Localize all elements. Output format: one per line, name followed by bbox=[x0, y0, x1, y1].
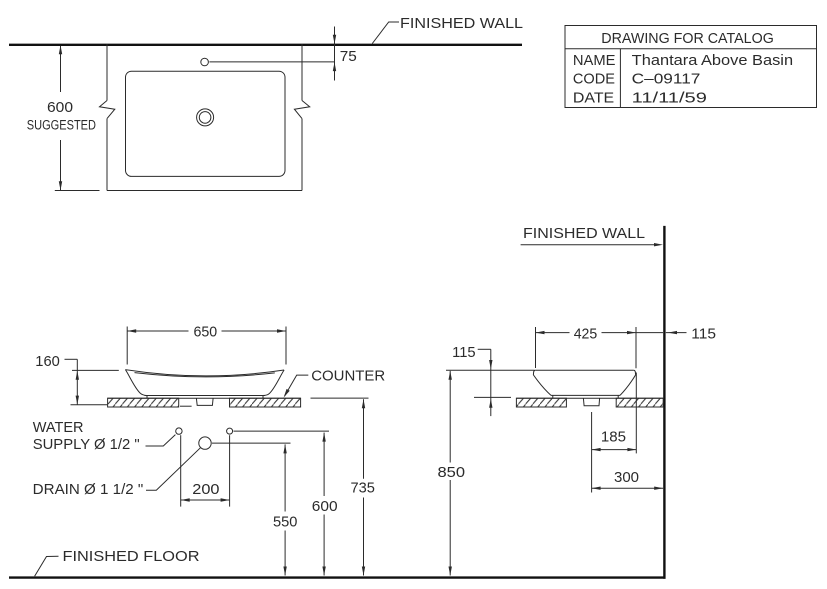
svg-text:DATE: DATE bbox=[573, 89, 614, 106]
svg-text:FINISHED WALL: FINISHED WALL bbox=[523, 225, 645, 242]
svg-text:160: 160 bbox=[35, 353, 60, 370]
svg-text:425: 425 bbox=[574, 326, 598, 343]
svg-text:300: 300 bbox=[614, 469, 639, 486]
svg-text:600: 600 bbox=[312, 498, 338, 515]
svg-text:Thantara Above Basin: Thantara Above Basin bbox=[632, 52, 793, 69]
svg-text:115: 115 bbox=[691, 326, 716, 343]
svg-text:75: 75 bbox=[340, 48, 357, 65]
svg-text:600: 600 bbox=[47, 99, 73, 116]
svg-text:SUGGESTED: SUGGESTED bbox=[27, 118, 96, 133]
svg-text:COUNTER: COUNTER bbox=[311, 367, 385, 384]
svg-text:C–09117: C–09117 bbox=[632, 70, 701, 87]
svg-text:850: 850 bbox=[438, 464, 466, 481]
svg-text:NAME: NAME bbox=[573, 52, 616, 69]
svg-text:550: 550 bbox=[273, 514, 297, 531]
svg-text:CODE: CODE bbox=[573, 70, 615, 87]
svg-text:185: 185 bbox=[601, 429, 626, 446]
svg-text:WATER: WATER bbox=[33, 419, 84, 436]
svg-text:DRAIN Ø 1 1/2 ": DRAIN Ø 1 1/2 " bbox=[33, 481, 144, 498]
svg-text:DRAWING FOR CATALOG: DRAWING FOR CATALOG bbox=[601, 30, 774, 47]
svg-text:115: 115 bbox=[452, 344, 476, 361]
svg-text:FINISHED WALL: FINISHED WALL bbox=[400, 15, 523, 32]
svg-text:11/11/59: 11/11/59 bbox=[632, 89, 707, 106]
svg-text:FINISHED FLOOR: FINISHED FLOOR bbox=[63, 548, 200, 565]
svg-text:SUPPLY Ø 1/2 ": SUPPLY Ø 1/2 " bbox=[33, 436, 140, 453]
svg-text:735: 735 bbox=[351, 480, 375, 497]
svg-text:200: 200 bbox=[192, 481, 219, 498]
svg-text:650: 650 bbox=[194, 324, 218, 341]
